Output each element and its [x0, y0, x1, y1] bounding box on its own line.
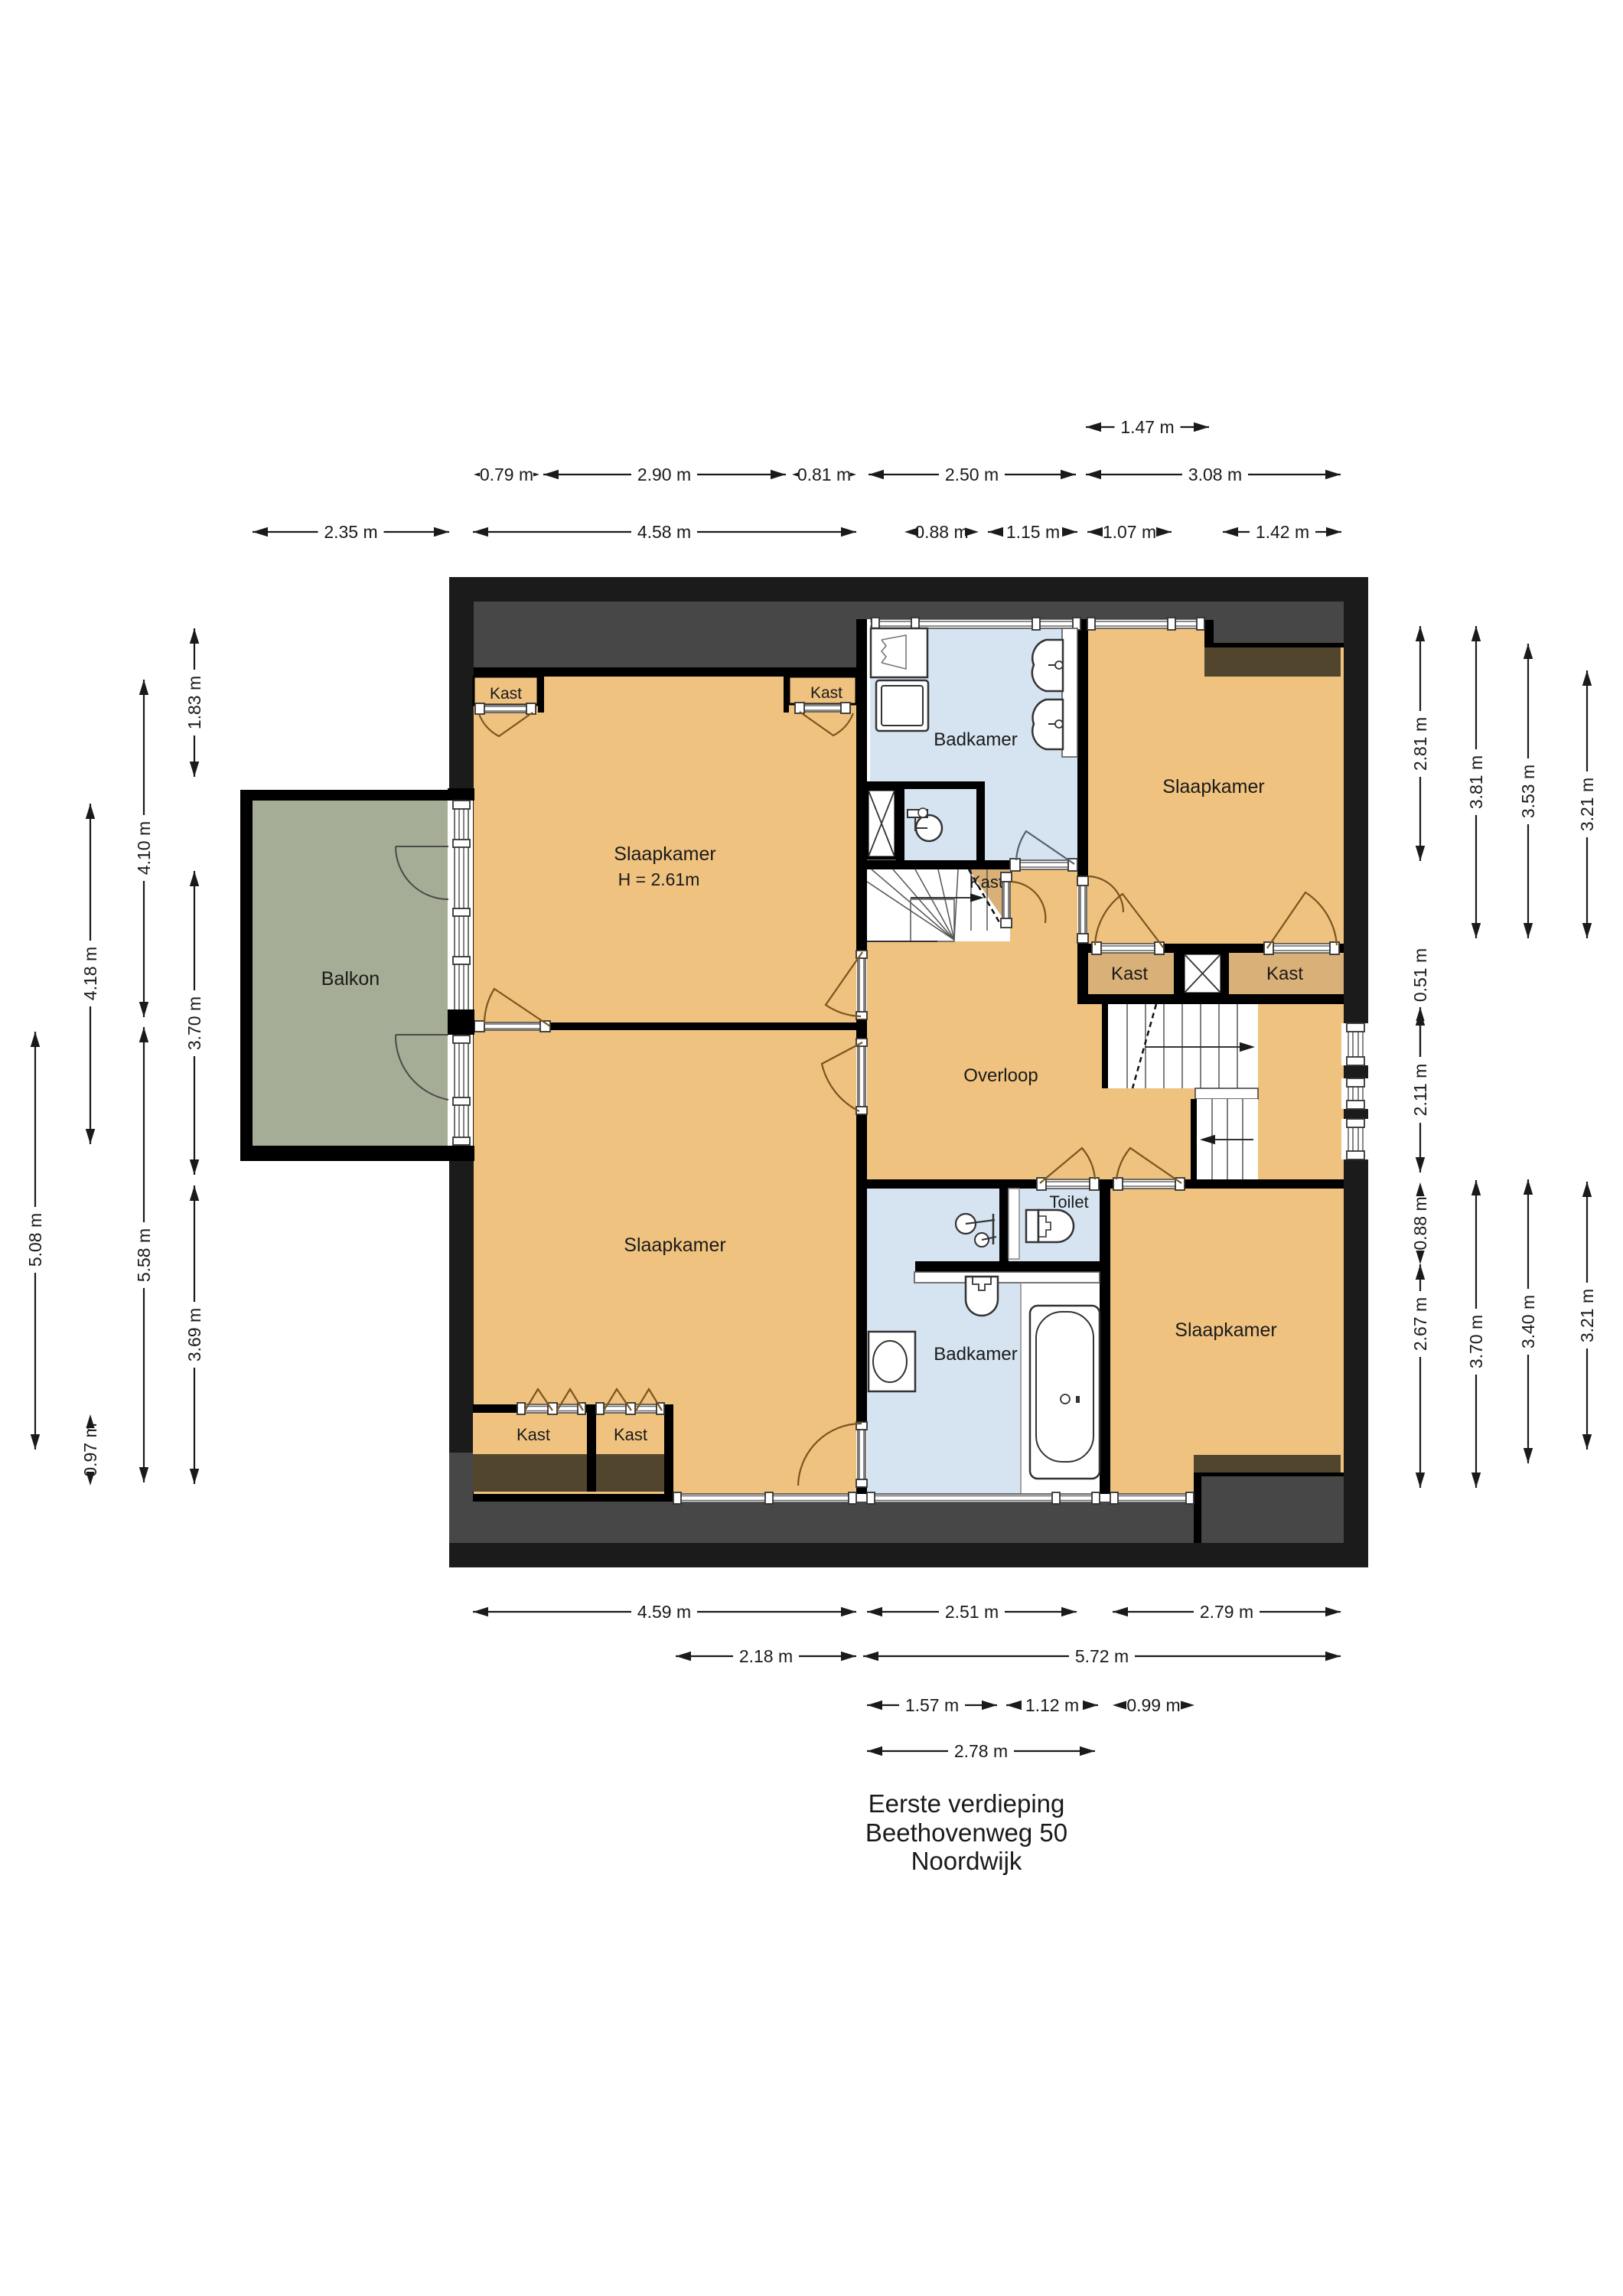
svg-text:2.18 m: 2.18 m [739, 1646, 793, 1666]
svg-text:0.51 m: 0.51 m [1410, 948, 1430, 1002]
svg-text:1.83 m: 1.83 m [184, 676, 204, 729]
svg-text:Kast: Kast [614, 1425, 647, 1444]
svg-text:Beethovenweg 50: Beethovenweg 50 [865, 1818, 1067, 1847]
svg-text:2.90 m: 2.90 m [637, 465, 691, 484]
svg-text:H = 2.61m: H = 2.61m [618, 869, 700, 889]
svg-text:5.72 m: 5.72 m [1075, 1646, 1129, 1666]
svg-text:Eerste verdieping: Eerste verdieping [869, 1789, 1065, 1818]
svg-text:5.58 m: 5.58 m [134, 1228, 154, 1282]
svg-text:2.79 m: 2.79 m [1200, 1602, 1253, 1622]
svg-text:0.81 m: 0.81 m [797, 465, 851, 484]
svg-text:2.78 m: 2.78 m [954, 1741, 1008, 1761]
svg-text:Overloop: Overloop [963, 1065, 1038, 1086]
svg-text:Slaapkamer: Slaapkamer [1162, 776, 1264, 797]
svg-text:1.12 m: 1.12 m [1025, 1695, 1079, 1715]
svg-text:Badkamer: Badkamer [934, 1344, 1017, 1365]
svg-text:0.99 m: 0.99 m [1126, 1695, 1180, 1715]
svg-text:2.50 m: 2.50 m [945, 465, 999, 484]
svg-text:0.88 m: 0.88 m [1410, 1196, 1430, 1250]
svg-text:Noordwijk: Noordwijk [911, 1847, 1022, 1875]
svg-text:3.21 m: 3.21 m [1577, 778, 1597, 831]
svg-text:0.97 m: 0.97 m [80, 1423, 100, 1476]
svg-text:1.47 m: 1.47 m [1120, 417, 1174, 437]
svg-text:Slaapkamer: Slaapkamer [1175, 1319, 1276, 1341]
svg-text:1.57 m: 1.57 m [905, 1695, 959, 1715]
svg-text:1.07 m: 1.07 m [1103, 522, 1156, 542]
svg-text:3.70 m: 3.70 m [1466, 1315, 1486, 1368]
svg-text:Toilet: Toilet [1049, 1192, 1088, 1212]
svg-text:Kast: Kast [970, 872, 1003, 892]
svg-text:4.59 m: 4.59 m [637, 1602, 691, 1622]
svg-text:Balkon: Balkon [321, 968, 380, 990]
svg-text:3.70 m: 3.70 m [184, 996, 204, 1050]
svg-text:0.79 m: 0.79 m [480, 465, 533, 484]
svg-text:Kast: Kast [810, 684, 842, 702]
svg-text:2.51 m: 2.51 m [945, 1602, 999, 1622]
svg-text:Kast: Kast [517, 1425, 550, 1444]
svg-text:3.69 m: 3.69 m [184, 1308, 204, 1362]
svg-text:1.42 m: 1.42 m [1256, 522, 1309, 542]
svg-text:2.67 m: 2.67 m [1410, 1297, 1430, 1351]
svg-text:Badkamer: Badkamer [934, 729, 1017, 750]
svg-text:Slaapkamer: Slaapkamer [614, 843, 715, 865]
svg-text:1.15 m: 1.15 m [1006, 522, 1060, 542]
svg-text:3.08 m: 3.08 m [1188, 465, 1242, 484]
svg-text:4.10 m: 4.10 m [134, 821, 154, 875]
svg-text:3.53 m: 3.53 m [1518, 765, 1538, 818]
svg-text:3.81 m: 3.81 m [1466, 755, 1486, 809]
svg-text:2.81 m: 2.81 m [1410, 717, 1430, 771]
svg-text:Kast: Kast [490, 685, 522, 703]
svg-text:Kast: Kast [1266, 964, 1303, 984]
svg-text:0.88 m: 0.88 m [914, 522, 968, 542]
svg-text:5.08 m: 5.08 m [25, 1213, 45, 1267]
svg-text:Kast: Kast [1111, 964, 1148, 984]
svg-text:4.18 m: 4.18 m [80, 947, 100, 1000]
svg-text:3.40 m: 3.40 m [1518, 1295, 1538, 1349]
svg-text:2.35 m: 2.35 m [324, 522, 377, 542]
svg-text:Slaapkamer: Slaapkamer [624, 1234, 725, 1256]
svg-text:2.11 m: 2.11 m [1410, 1064, 1430, 1117]
svg-text:4.58 m: 4.58 m [637, 522, 691, 542]
svg-text:3.21 m: 3.21 m [1577, 1289, 1597, 1342]
